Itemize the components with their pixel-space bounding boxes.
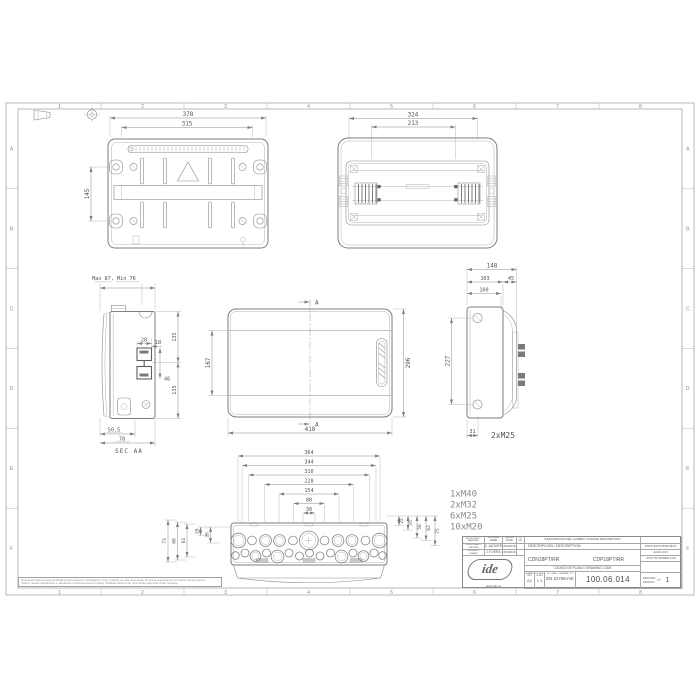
tb-product-code-1: CDN18PT/RR (528, 558, 559, 564)
col-label-top-3: 3 (224, 104, 227, 110)
tb-edition-cell: EDICION/ EDITION Nº 1 (641, 573, 682, 589)
tb-cell-empty-top-right (641, 537, 682, 544)
row-label-right-a: A (686, 147, 690, 153)
section-caption: SEC AA (115, 448, 143, 455)
gland-legend-m32: 2xM32 (450, 501, 477, 511)
dim-door-167-label: 167 (205, 357, 212, 368)
row-label-left-c: C (10, 306, 14, 312)
col-label-bottom-5: 5 (390, 590, 393, 596)
knockout-holes (231, 531, 387, 563)
dim-section-46-label: 46 (164, 377, 170, 383)
col-label-bottom-7: 7 (556, 590, 559, 596)
tb-header-change-description: DESCRIPCION DEL CAMBIO. CHANGE DESCRIPTI… (525, 537, 641, 544)
col-label-bottom-6: 6 (473, 590, 476, 596)
dim-bottom-228-label: 228 (304, 479, 313, 485)
dim-bottom-left-20-label: 20 (195, 528, 201, 534)
tb-cell-empty-3 (641, 562, 682, 573)
dim-side-100-label: 100 (479, 288, 488, 294)
col-label-top-2: 2 (141, 104, 144, 110)
row-label-right-f: F (686, 546, 689, 552)
dim-section-78-label: 78 (119, 437, 125, 443)
dim-bottom-right-35-label: 35 (408, 520, 414, 526)
dim-bottom-right-75-label: 75 (435, 528, 441, 534)
side-glands-label: 2xM25 (491, 431, 515, 440)
disclaimer-line-2: Total or partial reproduction or disclos… (21, 582, 219, 585)
dim-section-28-label: 28 (141, 338, 147, 344)
row-label-left-e: E (10, 466, 14, 472)
tb-tolerance-cell: TOL. GRAL. / GENERAL TOL. EN 22768-mK (545, 572, 576, 589)
dim-bottom-left-26-label: 26 (205, 532, 211, 538)
dim-bottom-154-label: 154 (304, 488, 313, 494)
dim-bottom-80-label: 80 (306, 498, 312, 504)
tb-scale-value: 1:1 (537, 579, 543, 583)
dim-back-inner-width-label: 315 (182, 121, 193, 128)
tb-tolerance-value: EN 22768-mK (546, 577, 574, 582)
col-label-top-1: 1 (58, 104, 61, 110)
drawing-sheet: 1 2 3 4 5 6 7 8 1 2 3 4 5 6 7 8 A B C D … (0, 0, 700, 700)
dim-side-31-label: 31 (469, 429, 475, 435)
col-label-top-6: 6 (473, 104, 476, 110)
dim-door-418-label: 418 (305, 426, 316, 433)
col-label-top-4: 4 (307, 104, 310, 110)
dim-side-148-label: 148 (487, 263, 498, 270)
view-back: 378 315 145 (84, 111, 268, 248)
sheet-frame: 1 2 3 4 5 6 7 8 1 2 3 4 5 6 7 8 A B C D … (6, 103, 694, 596)
dim-side-103-label: 103 (480, 276, 489, 282)
dim-depth-maxmin-label: Max 87, Min 76 (92, 276, 136, 282)
row-label-left-b: B (10, 227, 14, 233)
view-front-open: 324 213 (338, 112, 497, 249)
tb-header-amended: MODIFICADO / AMENDED (463, 537, 485, 544)
col-label-top-7: 7 (556, 104, 559, 110)
gland-legend-m25: 6xM25 (450, 512, 477, 522)
tb-size-value: A2 (527, 579, 532, 583)
row-label-right-d: D (686, 386, 690, 392)
row-label-right-e: E (686, 466, 690, 472)
col-label-bottom-1: 1 (58, 590, 61, 596)
din-rail-section-icon (137, 348, 152, 379)
dim-side-227-label: 227 (445, 355, 452, 366)
gland-legend-m40: 1xM40 (450, 490, 477, 500)
tb-header-edition-no: Nº EDI. (517, 537, 525, 544)
dim-section-135-top-label: 135 (172, 332, 178, 341)
tb-logo-cell: ide www.ide.es (463, 556, 525, 589)
dim-back-width-label: 378 (183, 111, 194, 118)
dim-bottom-right-62-label: 62 (426, 525, 432, 531)
row-label-right-b: B (686, 227, 690, 233)
col-label-bottom-4: 4 (307, 590, 310, 596)
section-marker-top-label: A (315, 300, 319, 307)
dim-bottom-30-label: 30 (306, 507, 312, 513)
tb-drawing-code-value: 100.06.014 (576, 572, 641, 589)
door-handle-icon (377, 339, 388, 387)
row-label-left-d: D (10, 386, 14, 392)
tb-header-date: FECHA DATE (503, 537, 517, 544)
dim-front-width-label: 324 (408, 112, 419, 119)
col-label-top-8: 8 (639, 104, 642, 110)
tb-size-cell: TAMAÑO SIZE A2 (525, 572, 535, 589)
dim-side-45-label: 45 (508, 276, 514, 282)
dim-section-505-label: 50.5 (108, 428, 121, 434)
legal-disclaimer: Queda terminantemente prohibida la repro… (18, 577, 222, 587)
company-logo-text: ide (481, 562, 499, 576)
title-block: MODIFICADO / AMENDED NOMBRE NAME FECHA D… (462, 536, 681, 588)
tb-scale-cell: ESCALA SCALE 1:1 (535, 572, 545, 589)
dim-bottom-left-68-label: 68 (172, 538, 178, 544)
dim-back-hole-spacing-label: 145 (84, 188, 91, 199)
view-door: A A 167 296 418 (205, 300, 412, 437)
mounting-screw-icon (130, 163, 246, 224)
dim-section-135-bottom-label: 135 (172, 385, 178, 394)
view-bottom-knockouts: 364 344 310 228 154 80 30 73 68 61 20 26… (162, 450, 483, 583)
dim-bottom-left-61-label: 61 (181, 538, 187, 544)
dim-door-296-label: 296 (405, 357, 412, 368)
dim-bottom-364-label: 364 (304, 450, 313, 456)
row-label-left-f: F (10, 546, 13, 552)
company-url: www.ide.es (463, 585, 524, 588)
tb-tolerance-label: TOL. GRAL. / GENERAL TOL. (546, 573, 573, 575)
col-label-bottom-8: 8 (639, 590, 642, 596)
company-logo: ide (465, 559, 514, 580)
gland-legend-m20: 10xM20 (450, 523, 483, 533)
view-side: 148 103 45 100 227 31 2xM25 (445, 263, 526, 441)
dim-bottom-344-label: 344 (304, 460, 313, 466)
col-label-top-5: 5 (390, 104, 393, 110)
drawing-canvas: 1 2 3 4 5 6 7 8 1 2 3 4 5 6 7 8 A B C D … (0, 0, 700, 700)
dim-front-rail-label: 213 (408, 120, 419, 127)
tb-scale-label: ESCALA SCALE (535, 573, 544, 577)
section-marker-bottom-label: A (315, 422, 319, 429)
dim-bottom-right-22-label: 22 (399, 518, 405, 524)
col-label-bottom-3: 3 (224, 590, 227, 596)
tb-product-codes: CDN18PT/RR CDP18PTIRR (525, 550, 641, 566)
tb-edition-number-sign: Nº (657, 579, 660, 582)
tb-header-name: NOMBRE NAME (485, 537, 503, 544)
dim-bottom-right-56-label: 56 (417, 524, 423, 530)
view-section-aa: Max 87, Min 76 135 135 28 18 46 50.5 78 … (92, 276, 181, 455)
tb-edition-label-2: EDITION (643, 581, 655, 584)
dim-bottom-left-73-label: 73 (162, 538, 168, 544)
col-label-bottom-2: 2 (141, 590, 144, 596)
dim-bottom-310-label: 310 (304, 469, 313, 475)
corner-clip-icon (351, 166, 485, 221)
row-label-right-c: C (686, 306, 690, 312)
gland-stub-icon (518, 344, 525, 386)
tb-product-code-2: CDP18PTIRR (593, 558, 624, 564)
tb-size-label: TAMAÑO SIZE (525, 573, 534, 577)
tb-edition-value: 1 (665, 577, 669, 585)
warning-triangle-icon (178, 162, 199, 181)
dim-section-18-label: 18 (155, 340, 161, 346)
row-label-left-a: A (10, 147, 14, 153)
